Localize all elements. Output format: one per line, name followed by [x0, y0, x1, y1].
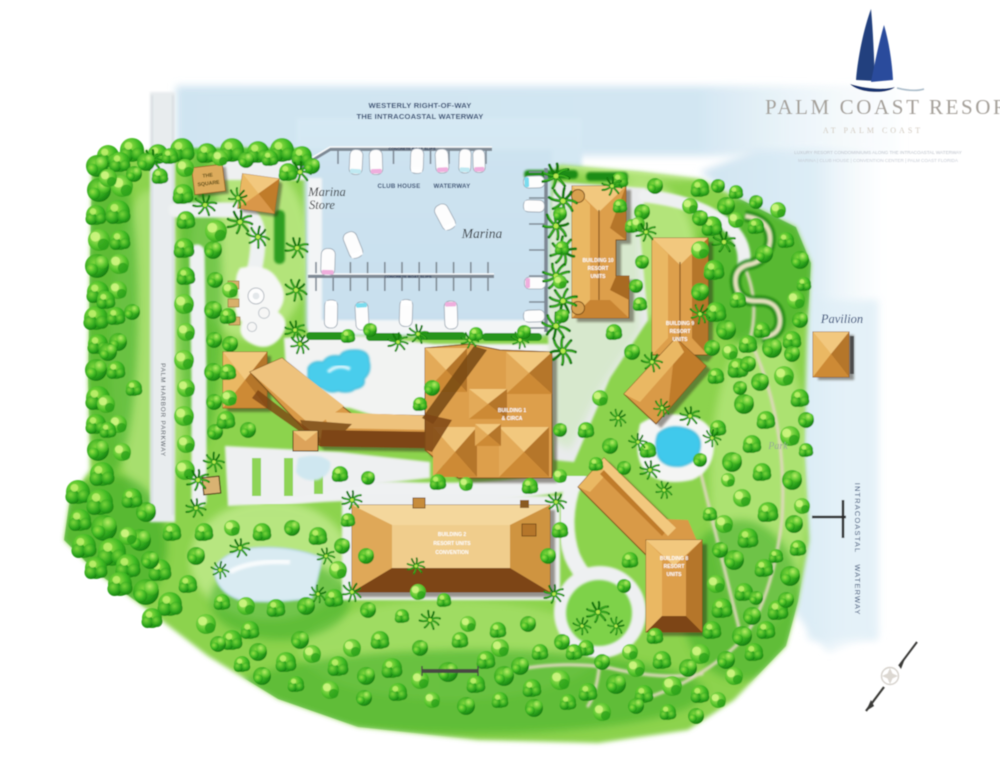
svg-text:CONCRETE BOAT SLIPS: CONCRETE BOAT SLIPS	[384, 274, 432, 279]
svg-text:PALM COAST RESORT: PALM COAST RESORT	[765, 95, 1000, 119]
svg-text:CLUB HOUSE: CLUB HOUSE	[378, 183, 421, 190]
svg-text:RESORT: RESORT	[664, 564, 685, 570]
svg-text:WATERWAY: WATERWAY	[434, 183, 472, 190]
svg-text:RESORT: RESORT	[670, 329, 691, 335]
svg-text:Marina: Marina	[307, 185, 346, 199]
svg-text:WATERWAY: WATERWAY	[853, 564, 862, 615]
svg-text:THE INTRACOASTAL WATERWAY: THE INTRACOASTAL WATERWAY	[357, 112, 484, 121]
svg-text:WESTERLY RIGHT-OF-WAY: WESTERLY RIGHT-OF-WAY	[368, 101, 471, 110]
svg-text:CONVENTION: CONVENTION	[435, 550, 469, 556]
svg-text:UNITS: UNITS	[667, 572, 683, 578]
svg-text:BUILDING 2: BUILDING 2	[438, 532, 467, 538]
svg-text:LUXURY RESORT CONDOMINIUMS ALO: LUXURY RESORT CONDOMINIUMS ALONG THE INT…	[794, 150, 962, 155]
svg-text:AT PALM COAST: AT PALM COAST	[823, 126, 923, 135]
svg-text:BUILDING 1: BUILDING 1	[498, 408, 527, 414]
svg-text:BUILDING 8: BUILDING 8	[660, 556, 689, 562]
svg-text:INTRACOASTAL: INTRACOASTAL	[853, 483, 862, 554]
svg-text:UNITS: UNITS	[673, 337, 689, 343]
svg-text:BUILDING 9: BUILDING 9	[666, 321, 695, 327]
svg-text:Park: Park	[767, 441, 788, 452]
svg-text:RESORT UNITS: RESORT UNITS	[433, 541, 471, 547]
svg-text:& CIRCA: & CIRCA	[502, 416, 523, 422]
svg-text:RESORT: RESORT	[588, 266, 609, 272]
svg-text:MARINA | CLUB HOUSE | CONVENTI: MARINA | CLUB HOUSE | CONVENTION CENTER …	[798, 158, 959, 163]
svg-text:PALM HARBOR PARKWAY: PALM HARBOR PARKWAY	[159, 363, 166, 457]
svg-text:BUILDING 10: BUILDING 10	[582, 258, 613, 264]
svg-text:Marina: Marina	[461, 226, 503, 241]
svg-text:Store: Store	[309, 198, 335, 212]
svg-text:UNITS: UNITS	[591, 274, 607, 280]
svg-text:Pavilion: Pavilion	[820, 312, 863, 326]
